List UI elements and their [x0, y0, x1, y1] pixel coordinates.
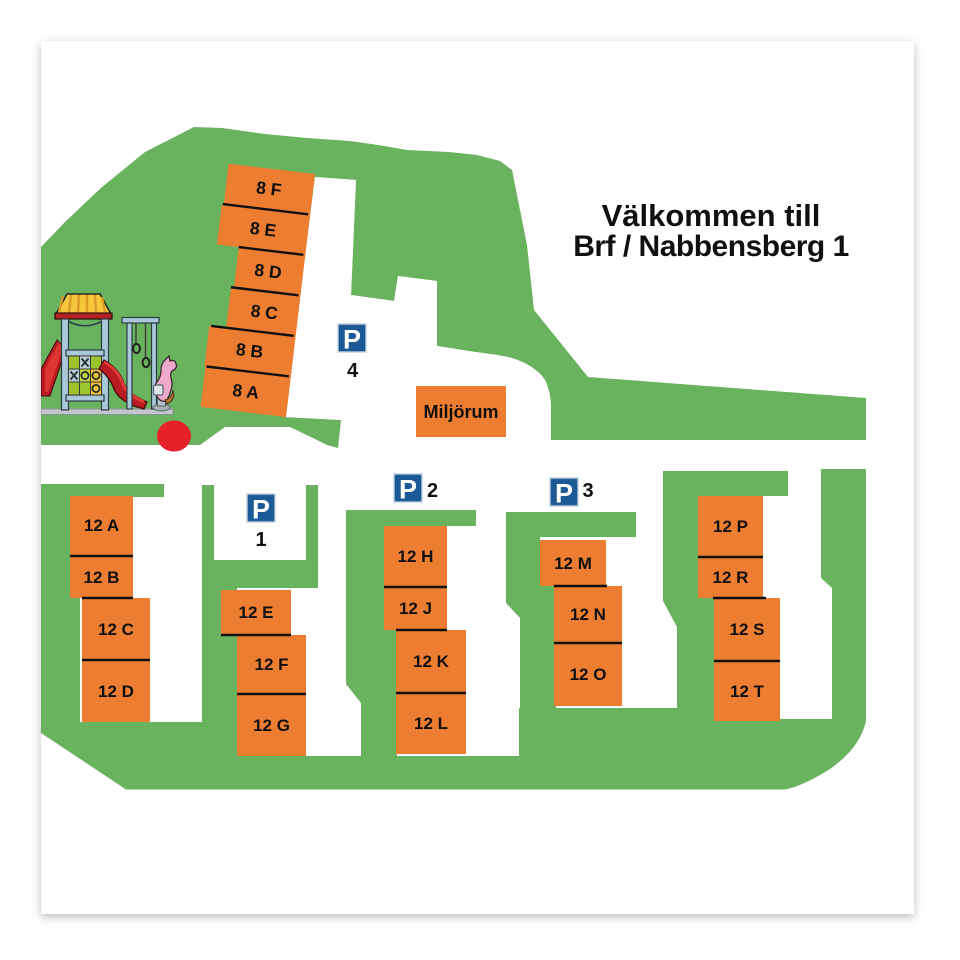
- svg-text:12 R: 12 R: [713, 568, 749, 587]
- svg-text:2: 2: [427, 480, 438, 502]
- svg-text:1: 1: [255, 529, 266, 551]
- svg-text:12 O: 12 O: [570, 665, 607, 684]
- svg-text:8 D: 8 D: [253, 260, 282, 283]
- svg-text:12 C: 12 C: [98, 620, 134, 639]
- svg-text:Brf / Nabbensberg 1: Brf / Nabbensberg 1: [573, 230, 849, 263]
- svg-text:12 P: 12 P: [713, 517, 748, 536]
- svg-text:12 F: 12 F: [254, 655, 288, 674]
- svg-text:12 G: 12 G: [253, 716, 290, 735]
- svg-text:12 E: 12 E: [239, 603, 274, 622]
- svg-text:P: P: [252, 495, 270, 525]
- svg-text:8 F: 8 F: [255, 177, 283, 200]
- svg-text:P: P: [399, 475, 417, 505]
- svg-text:12 B: 12 B: [84, 568, 120, 587]
- svg-text:Välkommen till: Välkommen till: [602, 198, 821, 233]
- svg-text:12 A: 12 A: [84, 516, 119, 535]
- svg-text:P: P: [555, 479, 573, 509]
- svg-text:12 J: 12 J: [399, 599, 432, 618]
- svg-text:8 B: 8 B: [235, 339, 264, 362]
- svg-text:12 T: 12 T: [730, 682, 765, 701]
- svg-text:8 C: 8 C: [250, 300, 280, 323]
- svg-text:P: P: [343, 325, 361, 355]
- svg-text:12 L: 12 L: [414, 714, 448, 733]
- svg-text:Miljörum: Miljörum: [424, 402, 499, 422]
- svg-text:8 E: 8 E: [249, 218, 277, 241]
- svg-text:12 N: 12 N: [570, 605, 606, 624]
- svg-text:12 S: 12 S: [730, 620, 765, 639]
- svg-text:4: 4: [347, 360, 359, 382]
- svg-text:12 H: 12 H: [398, 547, 434, 566]
- svg-text:3: 3: [582, 480, 593, 502]
- svg-text:12 M: 12 M: [554, 554, 592, 573]
- svg-text:12 K: 12 K: [413, 652, 450, 671]
- svg-text:8 A: 8 A: [231, 380, 260, 403]
- svg-text:12 D: 12 D: [98, 682, 134, 701]
